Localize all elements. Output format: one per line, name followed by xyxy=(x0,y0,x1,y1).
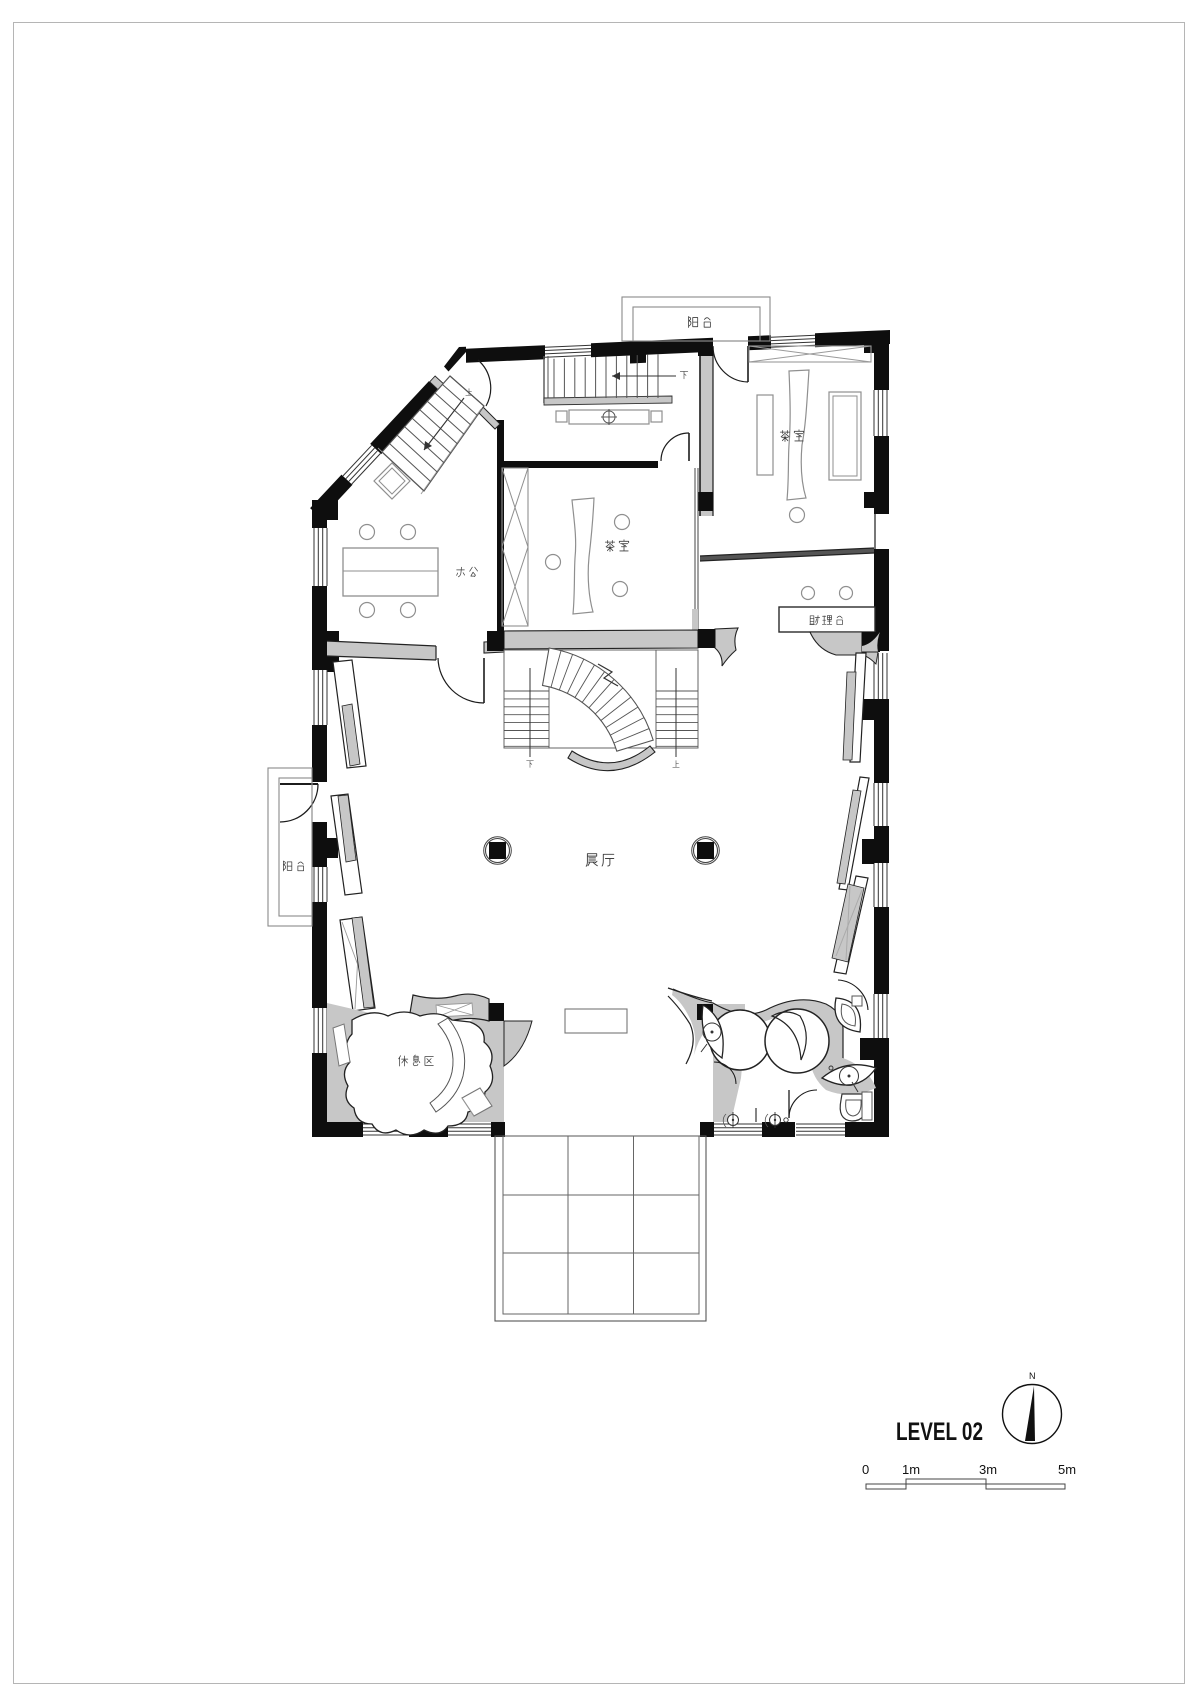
svg-text:1m: 1m xyxy=(902,1462,920,1477)
svg-text:LEVEL 02: LEVEL 02 xyxy=(896,1418,983,1446)
svg-text:N: N xyxy=(1029,1371,1036,1381)
svg-text:5m: 5m xyxy=(1058,1462,1076,1477)
svg-text:3m: 3m xyxy=(979,1462,997,1477)
svg-text:0: 0 xyxy=(862,1462,869,1477)
